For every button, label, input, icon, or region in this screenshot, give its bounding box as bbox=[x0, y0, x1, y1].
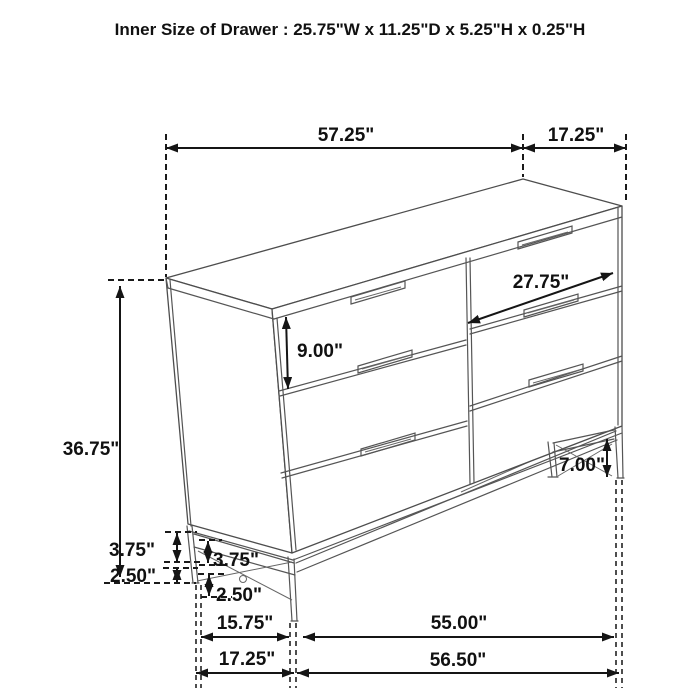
label-top-depth: 17.25" bbox=[548, 125, 605, 146]
dresser-dimension-diagram: Inner Size of Drawer : 25.75"W x 11.25"D… bbox=[0, 0, 700, 700]
label-base-depth-inner: 15.75" bbox=[217, 613, 274, 634]
label-left-frame-outer: 3.75" bbox=[109, 540, 155, 561]
diagram-canvas: Inner Size of Drawer : 25.75"W x 11.25"D… bbox=[0, 0, 700, 700]
label-left-leg-inner: 2.50" bbox=[216, 585, 262, 606]
label-base-depth-outer: 17.25" bbox=[219, 649, 276, 670]
label-overall-height: 36.75" bbox=[63, 439, 120, 460]
label-base-width-inner: 55.00" bbox=[431, 613, 488, 634]
label-right-leg-height: 7.00" bbox=[559, 455, 605, 476]
front-left-leg bbox=[288, 557, 298, 621]
diagram-title: Inner Size of Drawer : 25.75"W x 11.25"D… bbox=[115, 20, 586, 39]
label-top-drawer-height: 9.00" bbox=[297, 341, 343, 362]
label-top-width: 57.25" bbox=[318, 125, 375, 146]
label-drawer-front-width: 27.75" bbox=[513, 272, 570, 293]
label-base-width-outer: 56.50" bbox=[430, 650, 487, 671]
label-left-frame-inner: 3.75" bbox=[213, 550, 259, 571]
label-left-leg-outer: 2.50" bbox=[110, 566, 156, 587]
